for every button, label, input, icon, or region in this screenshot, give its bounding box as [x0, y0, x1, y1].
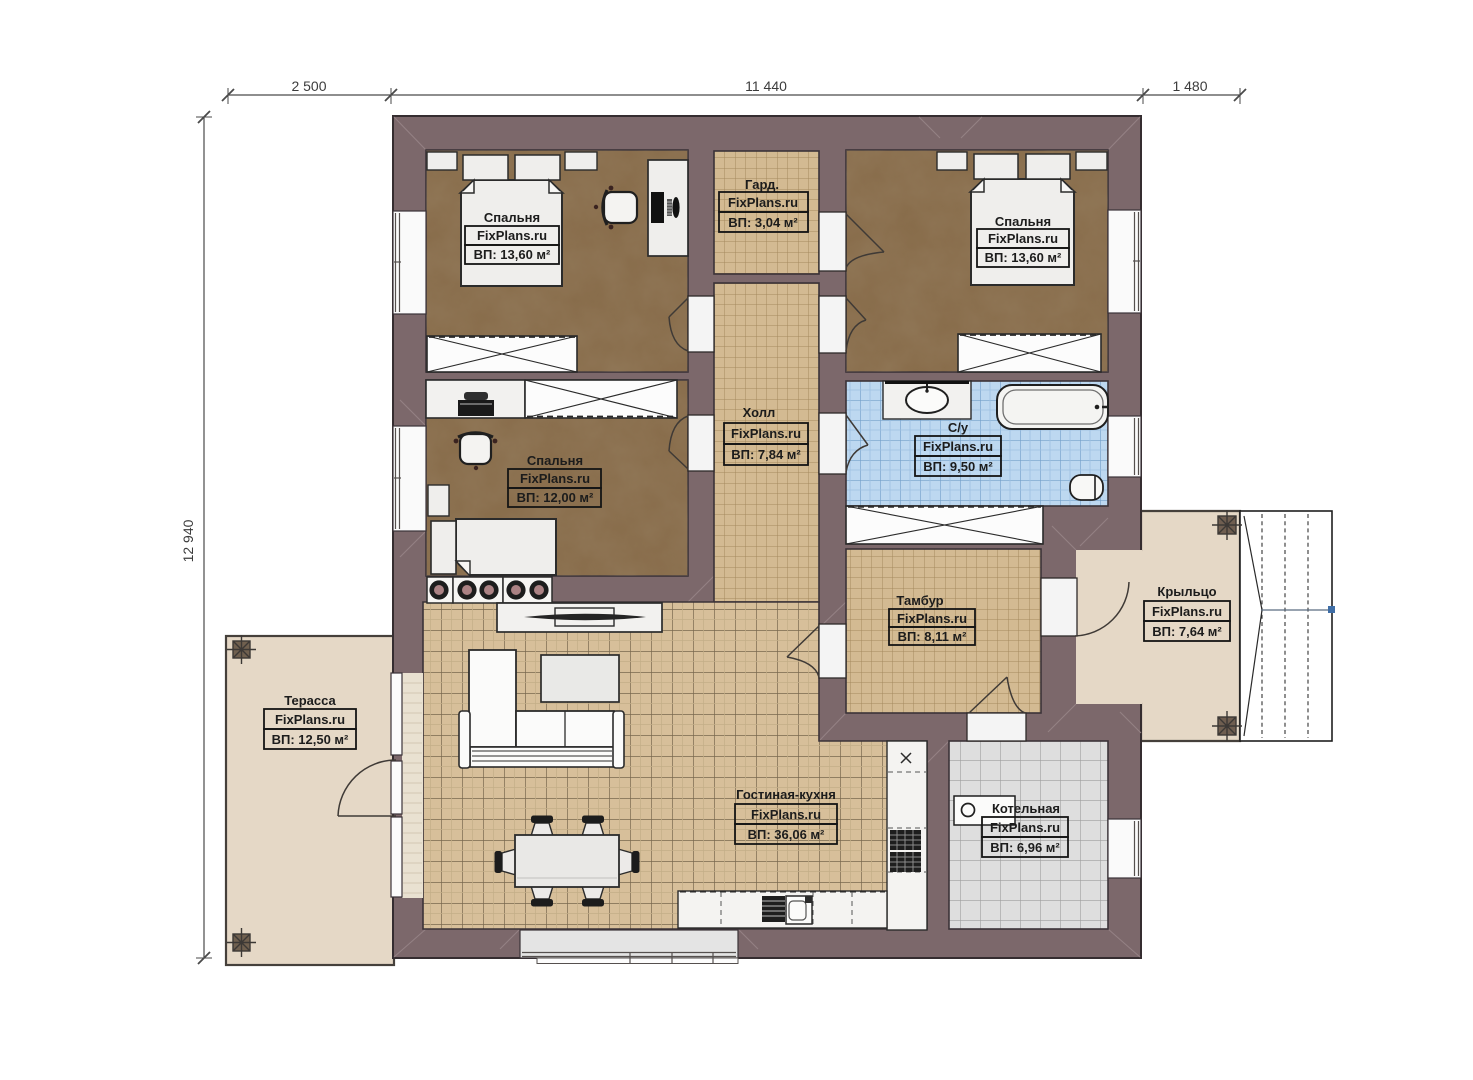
svg-text:12 940: 12 940 — [180, 519, 196, 562]
svg-text:Спальня: Спальня — [484, 210, 540, 225]
svg-text:С/у: С/у — [948, 420, 969, 435]
svg-text:ВП: 7,64 м²: ВП: 7,64 м² — [1152, 624, 1222, 639]
svg-text:FixPlans.ru: FixPlans.ru — [923, 439, 993, 454]
svg-text:ВП: 13,60 м²: ВП: 13,60 м² — [474, 247, 551, 262]
svg-text:FixPlans.ru: FixPlans.ru — [751, 807, 821, 822]
svg-text:Гард.: Гард. — [745, 177, 779, 192]
svg-text:2 500: 2 500 — [291, 78, 326, 94]
svg-text:ВП: 12,50 м²: ВП: 12,50 м² — [272, 732, 349, 747]
svg-text:FixPlans.ru: FixPlans.ru — [477, 228, 547, 243]
svg-text:FixPlans.ru: FixPlans.ru — [1152, 604, 1222, 619]
svg-text:Холл: Холл — [743, 405, 776, 420]
svg-text:Котельная: Котельная — [992, 801, 1060, 816]
svg-text:FixPlans.ru: FixPlans.ru — [728, 195, 798, 210]
svg-text:FixPlans.ru: FixPlans.ru — [897, 611, 967, 626]
svg-text:Терасса: Терасса — [284, 693, 336, 708]
svg-text:Крыльцо: Крыльцо — [1157, 584, 1216, 599]
svg-text:FixPlans.ru: FixPlans.ru — [990, 820, 1060, 835]
svg-text:Тамбур: Тамбур — [896, 593, 943, 608]
svg-text:Спальня: Спальня — [527, 453, 583, 468]
svg-text:Гостиная-кухня: Гостиная-кухня — [736, 787, 836, 802]
svg-text:FixPlans.ru: FixPlans.ru — [275, 712, 345, 727]
svg-text:ВП: 13,60 м²: ВП: 13,60 м² — [985, 250, 1062, 265]
svg-text:ВП: 9,50 м²: ВП: 9,50 м² — [923, 459, 993, 474]
svg-text:1 480: 1 480 — [1172, 78, 1207, 94]
svg-text:ВП: 7,84 м²: ВП: 7,84 м² — [731, 447, 801, 462]
svg-text:11 440: 11 440 — [745, 78, 787, 94]
svg-text:ВП: 36,06 м²: ВП: 36,06 м² — [748, 827, 825, 842]
svg-text:Спальня: Спальня — [995, 214, 1051, 229]
svg-text:ВП: 8,11 м²: ВП: 8,11 м² — [898, 629, 967, 644]
svg-text:FixPlans.ru: FixPlans.ru — [731, 426, 801, 441]
svg-text:FixPlans.ru: FixPlans.ru — [988, 231, 1058, 246]
svg-text:FixPlans.ru: FixPlans.ru — [520, 471, 590, 486]
svg-text:ВП: 12,00 м²: ВП: 12,00 м² — [517, 490, 594, 505]
svg-text:ВП: 3,04 м²: ВП: 3,04 м² — [728, 215, 798, 230]
svg-text:ВП: 6,96 м²: ВП: 6,96 м² — [990, 840, 1060, 855]
